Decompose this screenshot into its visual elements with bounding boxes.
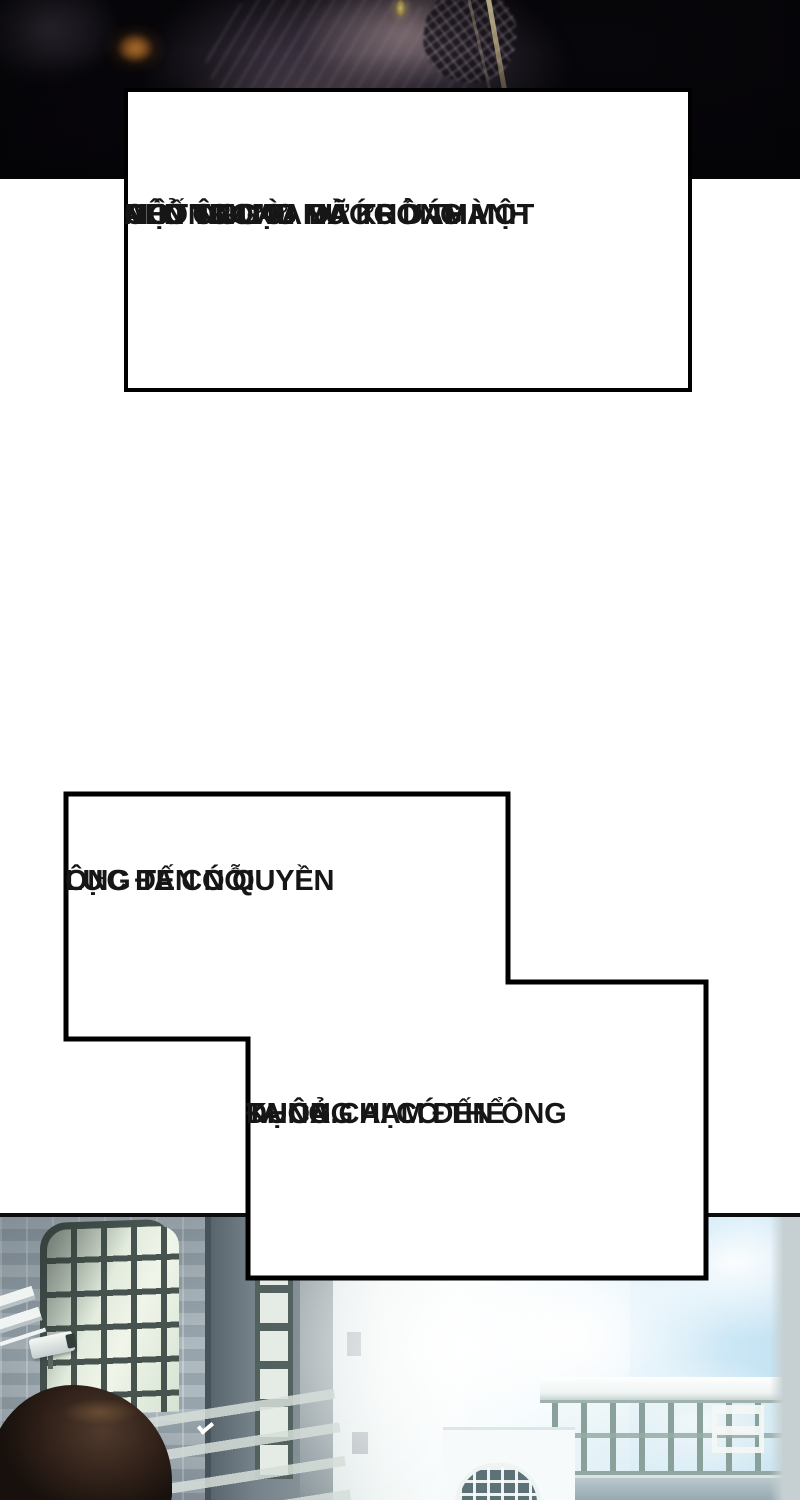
hair-highlight-art — [62, 1399, 138, 1425]
bottom-artwork-panel — [0, 1213, 800, 1500]
speech-line: LỰC ĐẾN NỖI — [65, 862, 254, 900]
arch-building-art — [443, 1427, 575, 1500]
ladder-rungs-art — [712, 1405, 764, 1453]
speech-box-1 — [124, 88, 692, 392]
bridge-top-beam-art — [540, 1377, 800, 1403]
right-building-art — [770, 1217, 800, 1500]
speech-line: CHỐNG LẠI. — [124, 196, 293, 234]
arch-window-art — [455, 1463, 541, 1500]
window-shadow-art — [40, 1219, 172, 1410]
comic-page: NÊN ÔNG TA ĐÃ TRỞ THÀNH MỘT NGƯỜI MÀ KHÔ… — [0, 0, 800, 1500]
speech-line: TA CẢ. — [246, 1095, 338, 1133]
bridge-bottom-beam-art — [540, 1475, 800, 1500]
